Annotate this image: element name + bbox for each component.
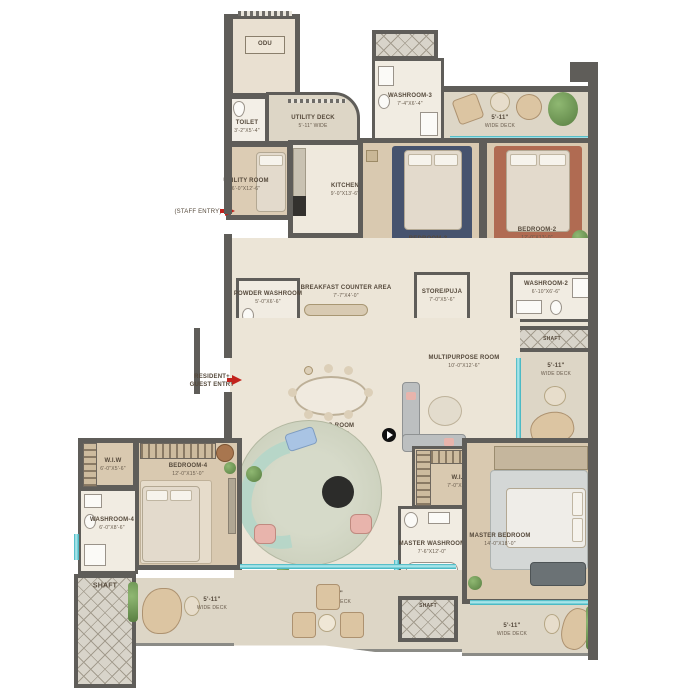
master-pillow-2	[572, 518, 583, 542]
deck-bl-label: 5'-11"WIDE DECK	[197, 597, 227, 611]
resident-entry-arrow-icon	[232, 375, 242, 385]
shaft-bl-label: SHAFT	[93, 581, 117, 590]
wall-right-outer	[588, 80, 598, 660]
wall-left-low	[224, 392, 232, 440]
shaft-mid-label: SHAFT	[543, 336, 561, 343]
deck-bl-sofa	[142, 588, 182, 634]
play-triangle-icon	[387, 431, 393, 439]
washroom4-sink-icon	[84, 494, 102, 508]
master-desk	[494, 446, 588, 470]
kitchen-label: KITCHEN9'-0"X13'-6"	[331, 183, 359, 197]
wall-left-top	[224, 14, 232, 214]
shaft-bm-label: SHAFT	[419, 603, 437, 610]
dining-chairs	[304, 366, 313, 375]
breakfast-counter	[304, 304, 368, 316]
living-armchair-1	[254, 524, 276, 544]
bedroom4-pillow-1	[146, 490, 168, 501]
deck-bm-chair-2	[292, 612, 316, 638]
deck-bm-table	[318, 614, 336, 632]
bedroom2-pillow-2	[539, 154, 566, 166]
deck-bm-chair-1	[316, 584, 340, 610]
deck-tr-label: 5'-11"WIDE DECK	[485, 115, 515, 129]
master-washroom-label: MASTER WASHROOM7'-6"X12'-0"	[399, 541, 466, 555]
bedroom4-console	[228, 478, 236, 534]
bedroom3-nightstand	[366, 150, 378, 162]
toilet-label: TOILET3'-2"X5'-4"	[234, 120, 259, 134]
washroom2-vanity-icon	[516, 300, 542, 314]
washroom4-window	[74, 534, 79, 560]
shaft-top	[372, 30, 438, 60]
bedroom3-pillow-2	[434, 154, 458, 166]
master-wc-icon	[404, 512, 418, 528]
deck-br-label: 5'-11"WIDE DECK	[497, 623, 527, 637]
deck-tr-table	[490, 92, 510, 112]
washroom3-label: WASHROOM-37'-4"X6'-4"	[388, 93, 432, 107]
living-round-chair	[322, 476, 354, 508]
deck-br-pouf	[544, 614, 560, 634]
bedroom4-table	[216, 444, 234, 462]
staff-entry-label: (STAFF ENTRY)	[174, 209, 221, 217]
washroom2-wc-icon	[550, 300, 562, 315]
bedroom2-pillow-1	[510, 154, 537, 166]
bedroom3-pillow-1	[408, 154, 432, 166]
washroom3-shower-icon	[420, 112, 438, 136]
living-armchair-2	[350, 514, 372, 534]
master-wiw-wardrobe-left	[416, 450, 431, 506]
master-bedroom-label: MASTER BEDROOM14'-0"X18'-0"	[469, 533, 530, 547]
odu-label: ODU	[258, 41, 272, 49]
utility-deck-label: UTILITY DECK5'-11" WIDE	[291, 115, 335, 129]
deck-right-label: 5'-11"WIDE DECK	[541, 363, 571, 377]
deck-bm-chair-3	[340, 612, 364, 638]
master-plant-icon	[468, 576, 482, 590]
utility-deck-grille	[288, 99, 346, 103]
multipurpose-rug	[428, 396, 462, 426]
deck-right-table	[544, 386, 566, 406]
washroom4-label: WASHROOM-46'-0"X8'-6"	[90, 517, 134, 531]
floor-plan: ODU TOILET3'-2"X5'-4" UTILITY DECK5'-11"…	[0, 0, 700, 700]
store-puja-label: STORE/PUJA7'-0"X5'-6"	[422, 289, 462, 303]
resident-entry-label: RESIDENT+GUEST ENTRY	[190, 374, 235, 390]
master-pillow-1	[572, 492, 583, 516]
powder-label: POWDER WASHROOM5'-0"X6'-6"	[234, 291, 302, 305]
deck-bl-planter-icon	[128, 582, 138, 622]
washroom2-label: WASHROOM-26'-10"X6'-6"	[524, 281, 568, 295]
kitchen-stove-icon	[293, 196, 306, 216]
master-south-window	[470, 600, 588, 605]
bedroom4-label: BEDROOM-412'-0"X15'-0"	[169, 463, 207, 477]
multipurpose-label: MULTIPURPOSE ROOM10'-0"X12'-6"	[429, 355, 500, 369]
living-south-window	[240, 564, 456, 569]
wiw4-wardrobe	[83, 443, 97, 487]
washroom4-shower-icon	[84, 544, 106, 566]
master-vanity-icon	[428, 512, 450, 524]
washroom3-sink-icon	[378, 66, 394, 86]
wall-right-top-stub	[570, 62, 598, 82]
odu-room	[228, 14, 300, 98]
multipurpose-cushion-1	[406, 392, 416, 400]
odu-vent-grille	[238, 11, 292, 16]
bedroom4-pillow-2	[170, 490, 192, 501]
bedroom4-wardrobe	[140, 443, 216, 459]
wall-left-mid	[224, 234, 232, 358]
multipurpose-cushion-2	[444, 438, 454, 446]
bedroom4-plant-icon	[224, 462, 236, 474]
breakfast-label: BREAKFAST COUNTER AREA7'-7"X4'-0"	[301, 285, 392, 299]
master-sofa	[530, 562, 586, 586]
shaft-bottom-left	[74, 574, 136, 688]
dining-table	[294, 376, 368, 416]
wiw4-label: W.I.W6'-0"X5'-6"	[100, 458, 125, 472]
deck-tr-plant-icon	[548, 92, 578, 126]
living-plant-icon	[246, 466, 262, 482]
utility-bed-pillow	[259, 155, 283, 166]
